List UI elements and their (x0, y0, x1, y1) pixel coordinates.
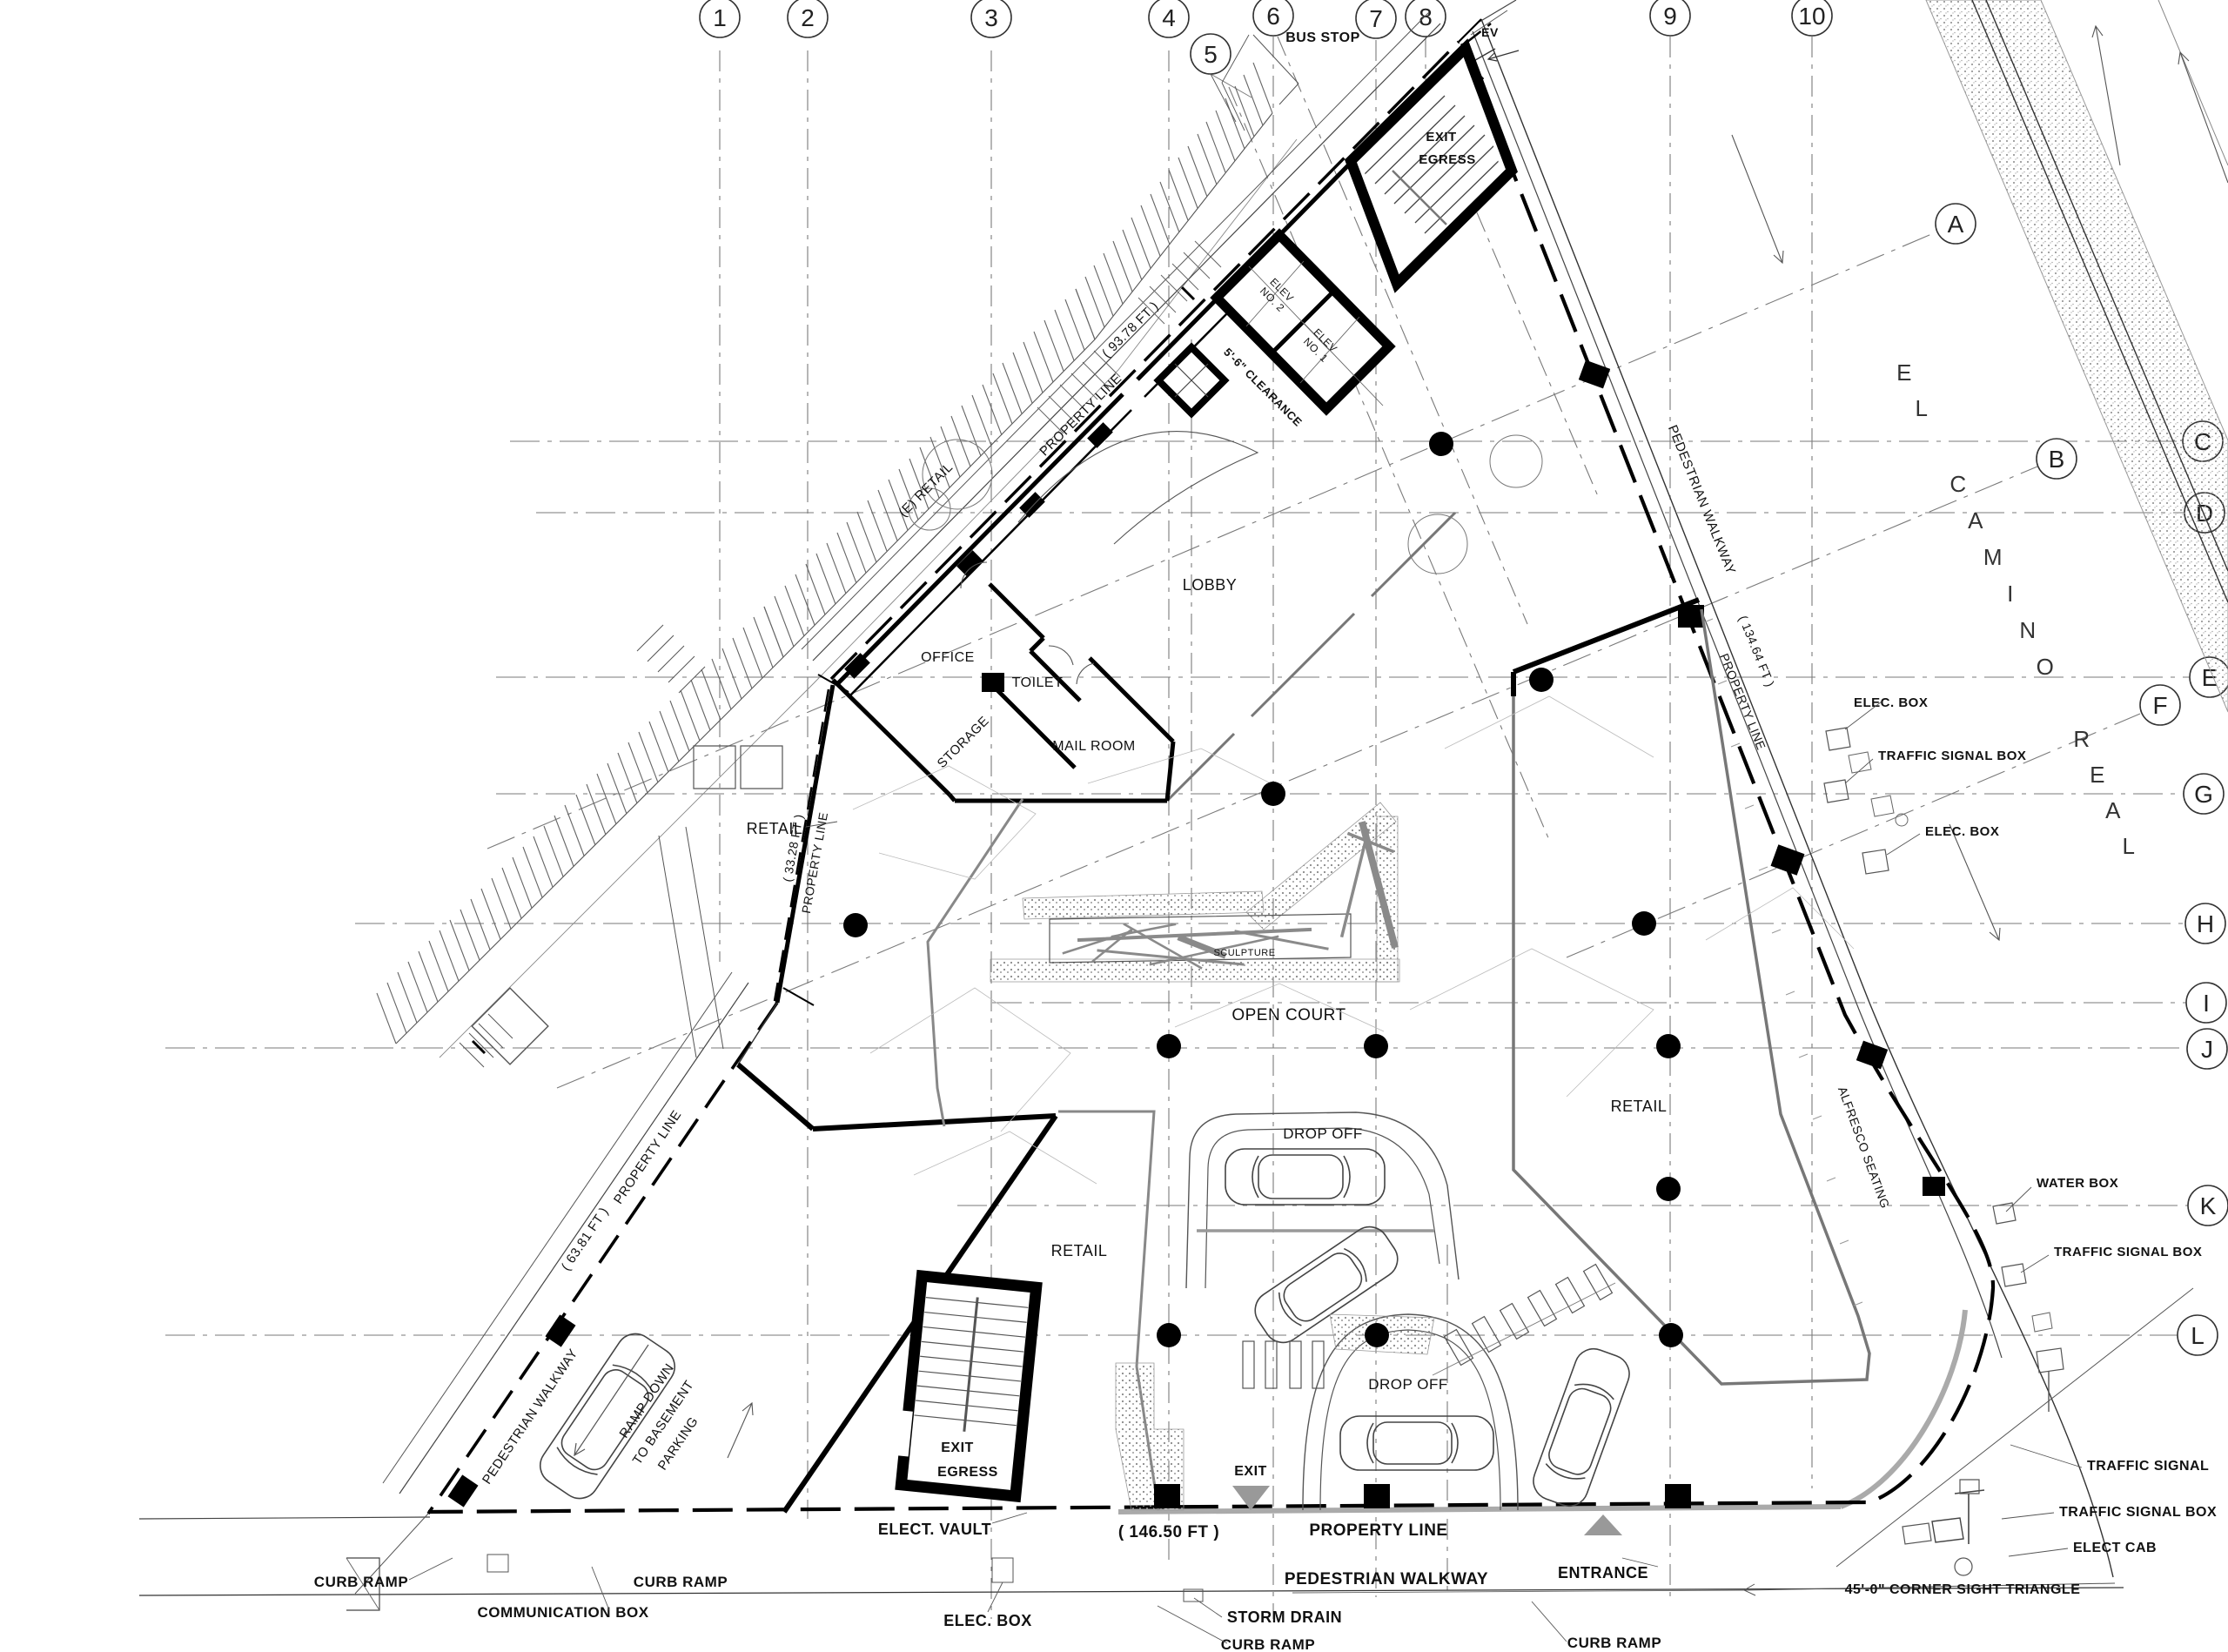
svg-text:EGRESS: EGRESS (1419, 152, 1476, 167)
svg-text:STORM DRAIN: STORM DRAIN (1227, 1608, 1342, 1626)
svg-text:BUS STOP: BUS STOP (1285, 30, 1360, 45)
svg-text:CURB RAMP: CURB RAMP (314, 1574, 408, 1590)
svg-text:COMMUNICATION BOX: COMMUNICATION BOX (477, 1604, 648, 1621)
svg-text:M: M (1983, 544, 2003, 570)
svg-text:L: L (1916, 395, 1929, 421)
svg-text:E: E (1896, 359, 1912, 386)
svg-text:TOILET: TOILET (1012, 675, 1064, 690)
svg-text:O: O (2037, 654, 2055, 680)
svg-text:EV: EV (1481, 25, 1499, 39)
svg-text:45'-0" CORNER SIGHT TRIANGLE: 45'-0" CORNER SIGHT TRIANGLE (1845, 1582, 2081, 1597)
svg-text:3: 3 (984, 4, 998, 31)
svg-text:K: K (2200, 1192, 2217, 1219)
svg-text:9: 9 (1663, 3, 1677, 30)
svg-text:RETAIL: RETAIL (747, 820, 803, 837)
svg-text:WATER BOX: WATER BOX (2037, 1176, 2118, 1191)
svg-text:( 146.50 FT ): ( 146.50 FT ) (1118, 1523, 1219, 1541)
svg-text:I: I (2007, 581, 2014, 607)
svg-text:CURB RAMP: CURB RAMP (634, 1574, 728, 1590)
svg-text:ELEC. BOX: ELEC. BOX (943, 1612, 1032, 1629)
svg-text:L: L (2123, 833, 2136, 859)
svg-text:ELECT. VAULT: ELECT. VAULT (878, 1521, 991, 1538)
svg-text:L: L (2191, 1322, 2205, 1349)
svg-text:ELEC. BOX: ELEC. BOX (1854, 695, 1928, 710)
svg-text:4: 4 (1162, 4, 1176, 31)
svg-text:EXIT: EXIT (1234, 1464, 1267, 1479)
svg-text:OPEN COURT: OPEN COURT (1231, 1006, 1346, 1024)
svg-text:ENTRANCE: ENTRANCE (1558, 1564, 1648, 1581)
svg-text:R: R (2073, 726, 2090, 752)
svg-text:ELEC. BOX: ELEC. BOX (1925, 824, 1999, 839)
svg-text:A: A (2105, 797, 2121, 823)
svg-text:A: A (1968, 507, 1983, 534)
svg-text:E: E (2090, 762, 2105, 788)
svg-text:H: H (2197, 910, 2214, 937)
svg-text:TRAFFIC SIGNAL BOX: TRAFFIC SIGNAL BOX (2054, 1245, 2202, 1259)
svg-text:TRAFFIC SIGNAL BOX: TRAFFIC SIGNAL BOX (2059, 1505, 2217, 1520)
svg-text:7: 7 (1369, 5, 1383, 32)
svg-text:TRAFFIC SIGNAL BOX: TRAFFIC SIGNAL BOX (1878, 749, 2026, 763)
svg-text:J: J (2201, 1036, 2213, 1063)
svg-text:N: N (2019, 617, 2036, 643)
svg-text:PEDESTRIAN WALKWAY: PEDESTRIAN WALKWAY (1285, 1570, 1488, 1588)
svg-text:A: A (1948, 211, 1964, 238)
svg-text:CURB RAMP: CURB RAMP (1221, 1636, 1315, 1652)
svg-text:DROP OFF: DROP OFF (1368, 1376, 1448, 1393)
svg-text:SCULPTURE: SCULPTURE (1213, 948, 1275, 958)
svg-text:B: B (2049, 446, 2065, 473)
svg-text:5: 5 (1204, 41, 1218, 68)
svg-text:F: F (2152, 692, 2167, 719)
svg-text:10: 10 (1798, 3, 1825, 30)
svg-text:TRAFFIC SIGNAL: TRAFFIC SIGNAL (2087, 1459, 2209, 1474)
svg-text:RETAIL: RETAIL (1611, 1098, 1668, 1115)
svg-text:EXIT: EXIT (941, 1440, 974, 1455)
svg-text:EGRESS: EGRESS (937, 1465, 998, 1480)
svg-text:1: 1 (713, 4, 727, 31)
svg-text:OFFICE: OFFICE (921, 650, 975, 665)
svg-text:CURB RAMP: CURB RAMP (1567, 1635, 1661, 1651)
svg-text:EXIT: EXIT (1426, 130, 1456, 144)
svg-text:ELECT CAB: ELECT CAB (2073, 1541, 2157, 1555)
svg-text:LOBBY: LOBBY (1183, 576, 1238, 594)
svg-text:C: C (1949, 471, 1966, 497)
svg-text:PROPERTY LINE: PROPERTY LINE (1309, 1521, 1447, 1540)
svg-text:MAIL ROOM: MAIL ROOM (1052, 739, 1135, 754)
svg-text:RETAIL: RETAIL (1051, 1242, 1108, 1259)
svg-text:I: I (2203, 990, 2210, 1017)
svg-text:G: G (2194, 781, 2213, 808)
svg-text:6: 6 (1266, 3, 1280, 30)
svg-text:DROP OFF: DROP OFF (1283, 1125, 1363, 1142)
svg-text:2: 2 (801, 4, 815, 31)
svg-text:8: 8 (1419, 3, 1433, 30)
